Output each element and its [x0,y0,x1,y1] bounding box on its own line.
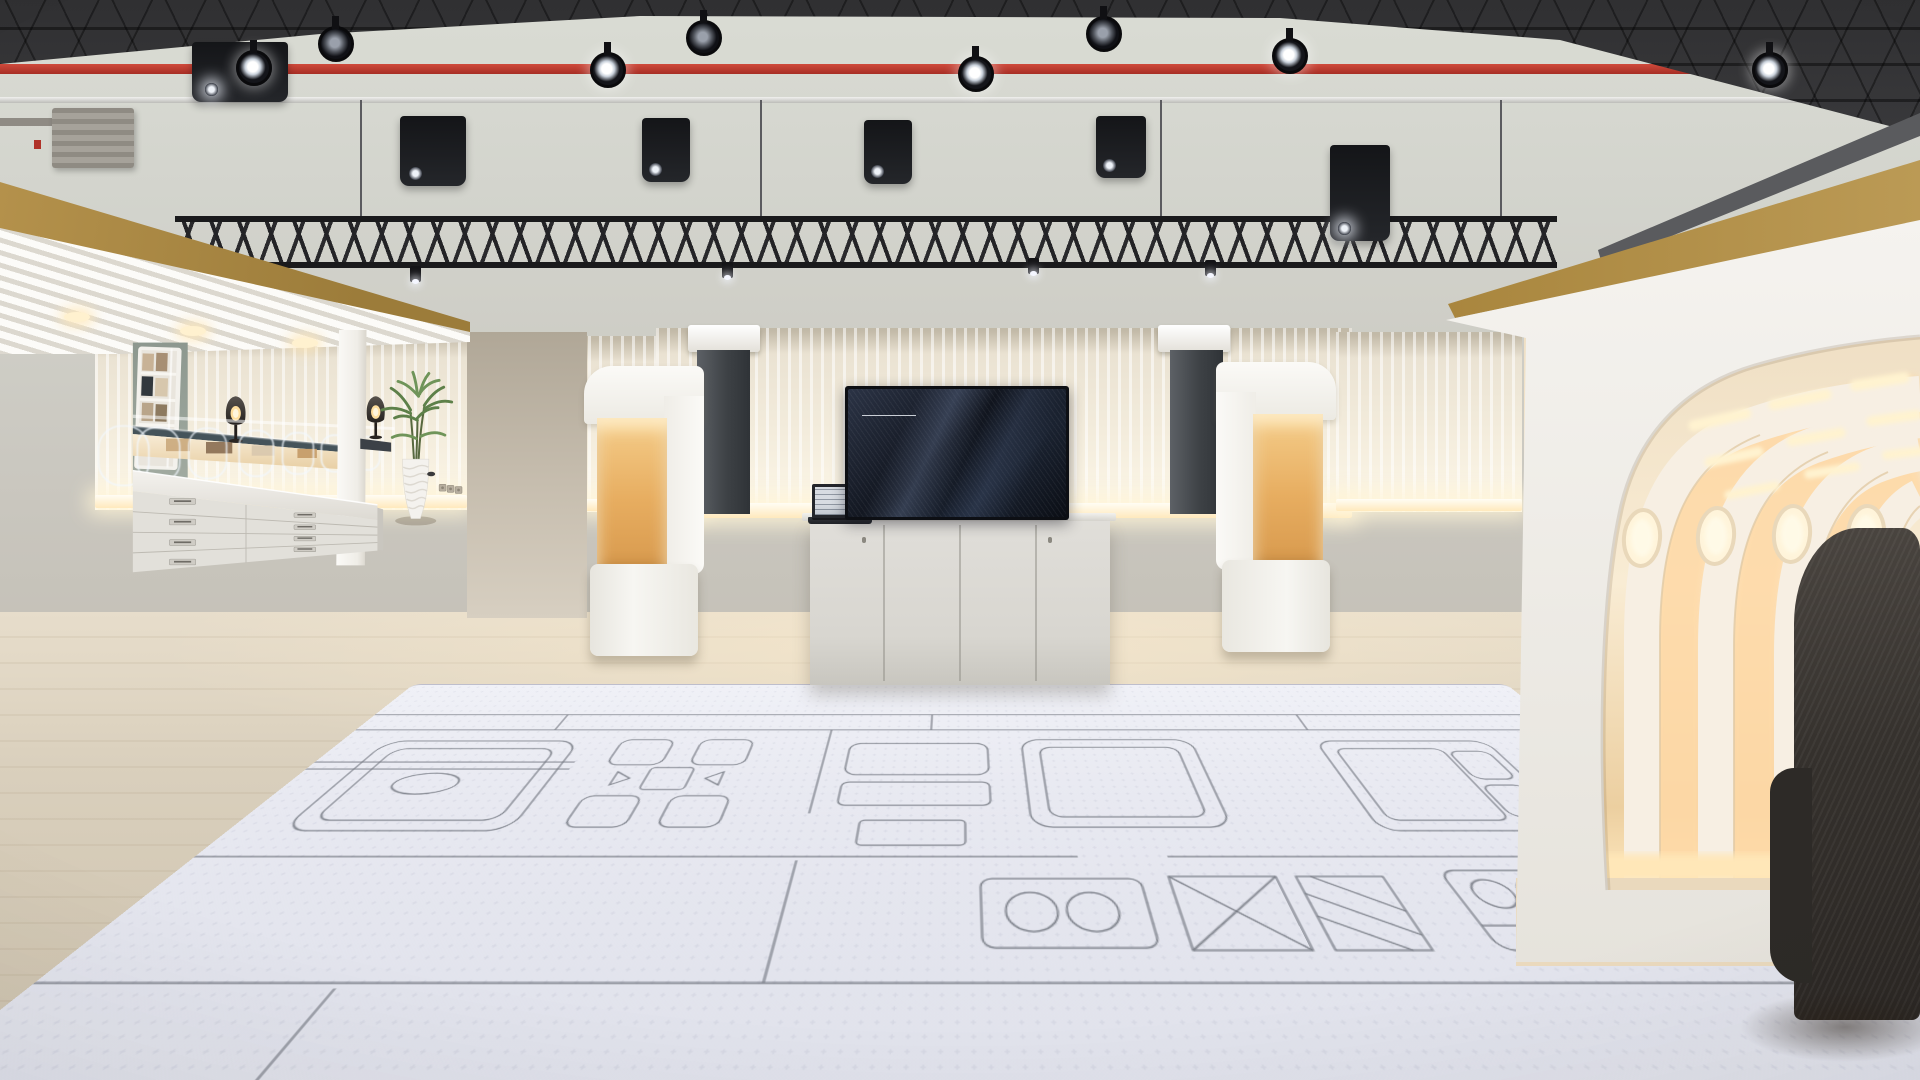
hvac-heater [52,108,134,168]
spotlight [318,26,354,62]
sprinkler-valve [34,140,41,149]
showroom-scene [0,0,1920,1080]
spotlight [1752,52,1788,88]
slat-wall-cap [1158,325,1230,352]
material-library-unit [0,330,620,770]
truss-light [410,266,421,282]
potted-plant [382,372,452,518]
pedestal-base [590,564,698,656]
display-screen-content [848,389,1066,517]
spotlight [958,56,994,92]
downlight [64,312,90,322]
pedestal-spine [664,396,704,574]
spotlight [236,50,272,86]
logo-underline [862,415,916,416]
pedestal-spine [1216,392,1256,570]
hanger-rod [360,100,362,218]
pedestal-niche [597,418,667,568]
heater-duct [0,118,58,126]
projector [1330,145,1390,241]
truss-light [1028,258,1039,274]
media-cabinet [810,521,1110,685]
slat-wall-cap [688,325,760,352]
computer-mouse [427,472,435,477]
hanger-rod [1160,100,1162,218]
spotlight [686,20,722,56]
projector [864,120,912,184]
hanger-rod [760,100,762,218]
display-screen [845,386,1069,520]
spotlight [1272,38,1308,74]
model-pedestal-left [584,366,704,656]
spotlight [590,52,626,88]
model-pedestal-right [1216,362,1336,652]
projector [1096,116,1146,178]
wall-outlets [439,484,462,493]
table-lamp [367,396,385,439]
pedestal-niche [1253,414,1323,564]
truss-light [1205,260,1216,276]
armchair-seat [1794,528,1920,1020]
projector [642,118,690,182]
truss-light [722,262,733,278]
spotlight [1086,16,1122,52]
slat-wall-post [697,350,750,514]
projector [400,116,466,186]
pedestal-base [1222,560,1330,652]
